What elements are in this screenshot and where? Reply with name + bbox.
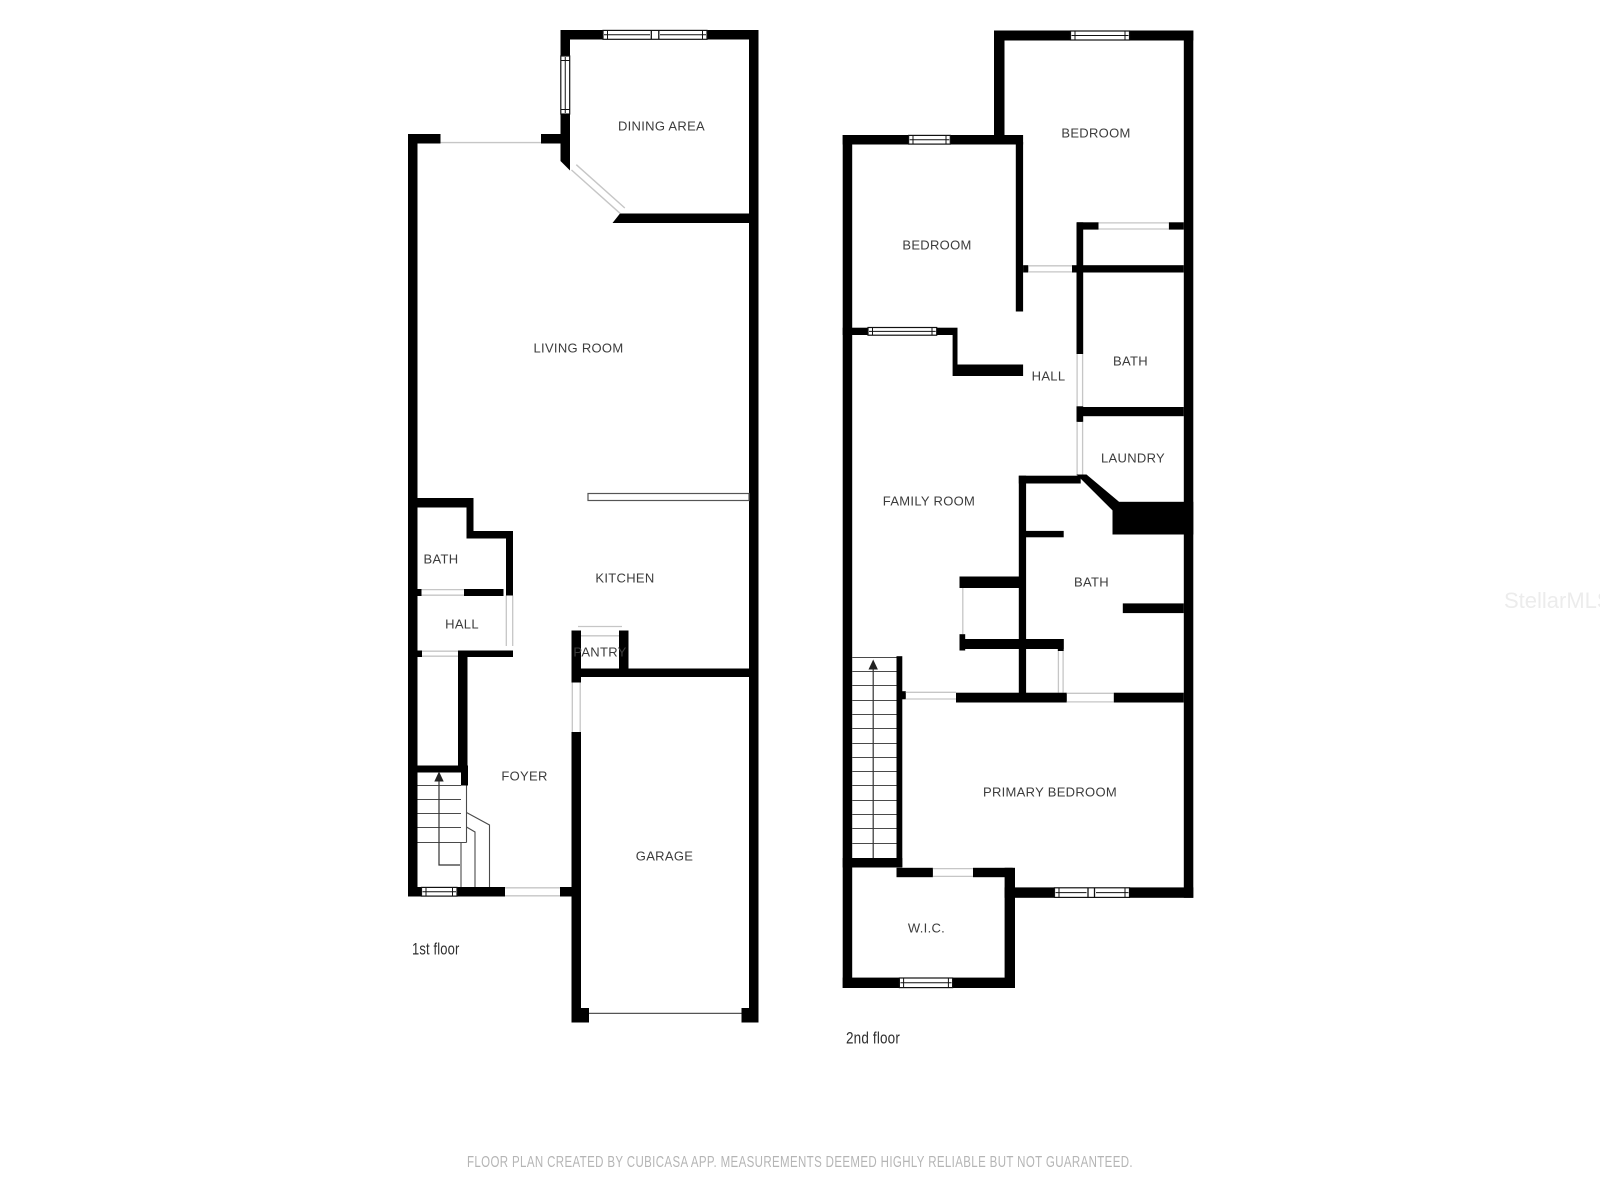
svg-text:GARAGE: GARAGE	[636, 849, 693, 864]
svg-text:BEDROOM: BEDROOM	[902, 238, 971, 253]
svg-text:BEDROOM: BEDROOM	[1061, 126, 1130, 141]
svg-text:LAUNDRY: LAUNDRY	[1101, 451, 1165, 466]
svg-text:BATH: BATH	[1113, 354, 1148, 369]
svg-text:HALL: HALL	[445, 617, 479, 632]
svg-text:BATH: BATH	[1074, 575, 1109, 590]
svg-text:FAMILY ROOM: FAMILY ROOM	[883, 494, 975, 509]
svg-text:FLOOR PLAN CREATED BY CUBICASA: FLOOR PLAN CREATED BY CUBICASA APP. MEAS…	[467, 1154, 1133, 1171]
svg-text:LIVING ROOM: LIVING ROOM	[534, 341, 624, 356]
svg-text:W.I.C.: W.I.C.	[908, 921, 945, 936]
svg-text:KITCHEN: KITCHEN	[595, 571, 654, 586]
svg-text:HALL: HALL	[1032, 369, 1066, 384]
svg-text:PANTRY: PANTRY	[573, 645, 626, 660]
svg-text:FOYER: FOYER	[501, 769, 547, 784]
svg-text:1st floor: 1st floor	[412, 941, 460, 959]
svg-text:StellarMLS: StellarMLS	[1504, 588, 1600, 613]
svg-text:BATH: BATH	[424, 552, 459, 567]
svg-text:DINING AREA: DINING AREA	[618, 119, 705, 134]
svg-text:PRIMARY BEDROOM: PRIMARY BEDROOM	[983, 785, 1117, 800]
svg-text:2nd floor: 2nd floor	[846, 1030, 900, 1048]
